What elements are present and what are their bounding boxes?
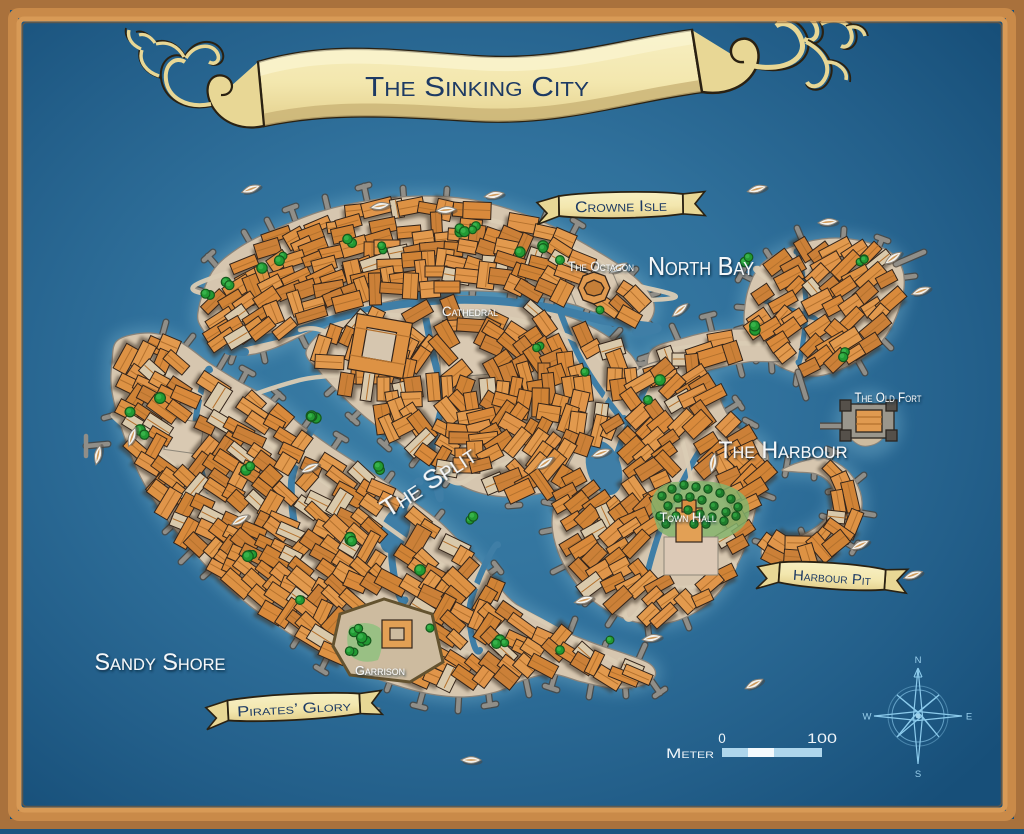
svg-text:E: E bbox=[966, 712, 972, 723]
svg-text:N: N bbox=[915, 655, 922, 666]
svg-text:0: 0 bbox=[718, 731, 726, 746]
svg-text:Sandy Shore: Sandy Shore bbox=[95, 649, 226, 676]
svg-text:S: S bbox=[915, 769, 921, 780]
svg-text:The Old Fort: The Old Fort bbox=[855, 390, 922, 405]
svg-text:Meter: Meter bbox=[666, 746, 715, 761]
svg-text:North Bay: North Bay bbox=[648, 251, 754, 281]
svg-text:Town Hall: Town Hall bbox=[660, 510, 717, 525]
svg-text:Cathedral: Cathedral bbox=[442, 304, 498, 319]
svg-text:The Harbour: The Harbour bbox=[719, 437, 848, 464]
svg-text:The Octagon: The Octagon bbox=[568, 259, 634, 274]
svg-text:Crowne Isle: Crowne Isle bbox=[575, 198, 667, 217]
svg-text:W: W bbox=[863, 712, 872, 723]
svg-text:The Sinking City: The Sinking City bbox=[365, 71, 589, 102]
svg-text:Garrison: Garrison bbox=[355, 663, 405, 678]
svg-text:100: 100 bbox=[807, 731, 837, 746]
